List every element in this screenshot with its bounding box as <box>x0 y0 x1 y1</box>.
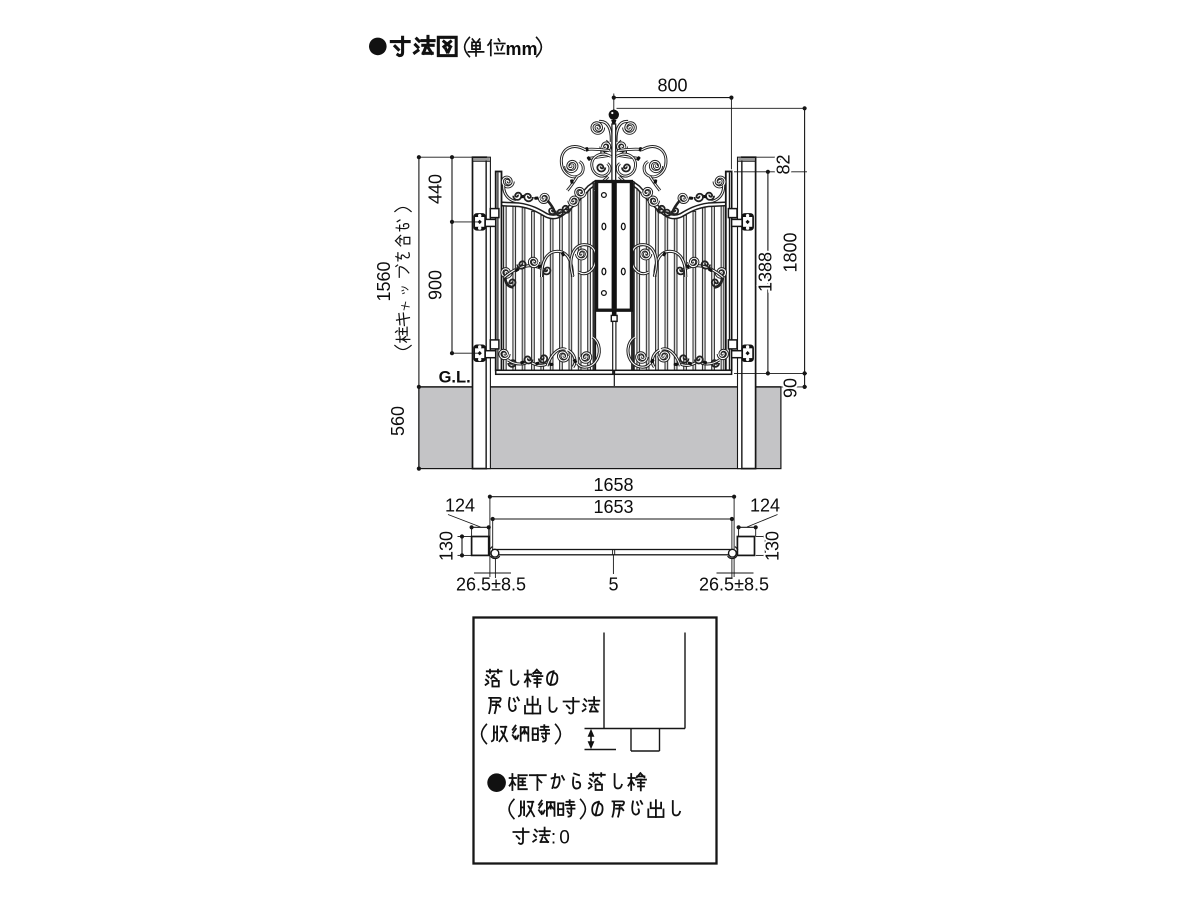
svg-text:26.5±8.5: 26.5±8.5 <box>456 575 526 595</box>
svg-text:mm: mm <box>506 39 538 59</box>
svg-text:1653: 1653 <box>593 497 633 517</box>
svg-text:130: 130 <box>437 531 457 561</box>
svg-text:1560: 1560 <box>374 261 394 301</box>
svg-text:560: 560 <box>388 406 408 436</box>
svg-text:90: 90 <box>781 378 801 398</box>
svg-text:124: 124 <box>445 496 475 516</box>
svg-text:1658: 1658 <box>593 475 633 495</box>
svg-text:130: 130 <box>763 531 783 561</box>
svg-text:124: 124 <box>750 496 780 516</box>
svg-text:1388: 1388 <box>756 252 776 292</box>
svg-text:800: 800 <box>657 76 687 96</box>
svg-text:1800: 1800 <box>781 232 801 272</box>
svg-text:900: 900 <box>426 270 446 300</box>
svg-text::: : <box>551 828 556 849</box>
svg-text:0: 0 <box>559 828 570 849</box>
svg-text:26.5±8.5: 26.5±8.5 <box>699 575 769 595</box>
svg-text:82: 82 <box>774 154 794 174</box>
svg-text:G.L.: G.L. <box>439 369 471 387</box>
svg-text:5: 5 <box>608 575 618 595</box>
svg-text:440: 440 <box>426 174 446 204</box>
